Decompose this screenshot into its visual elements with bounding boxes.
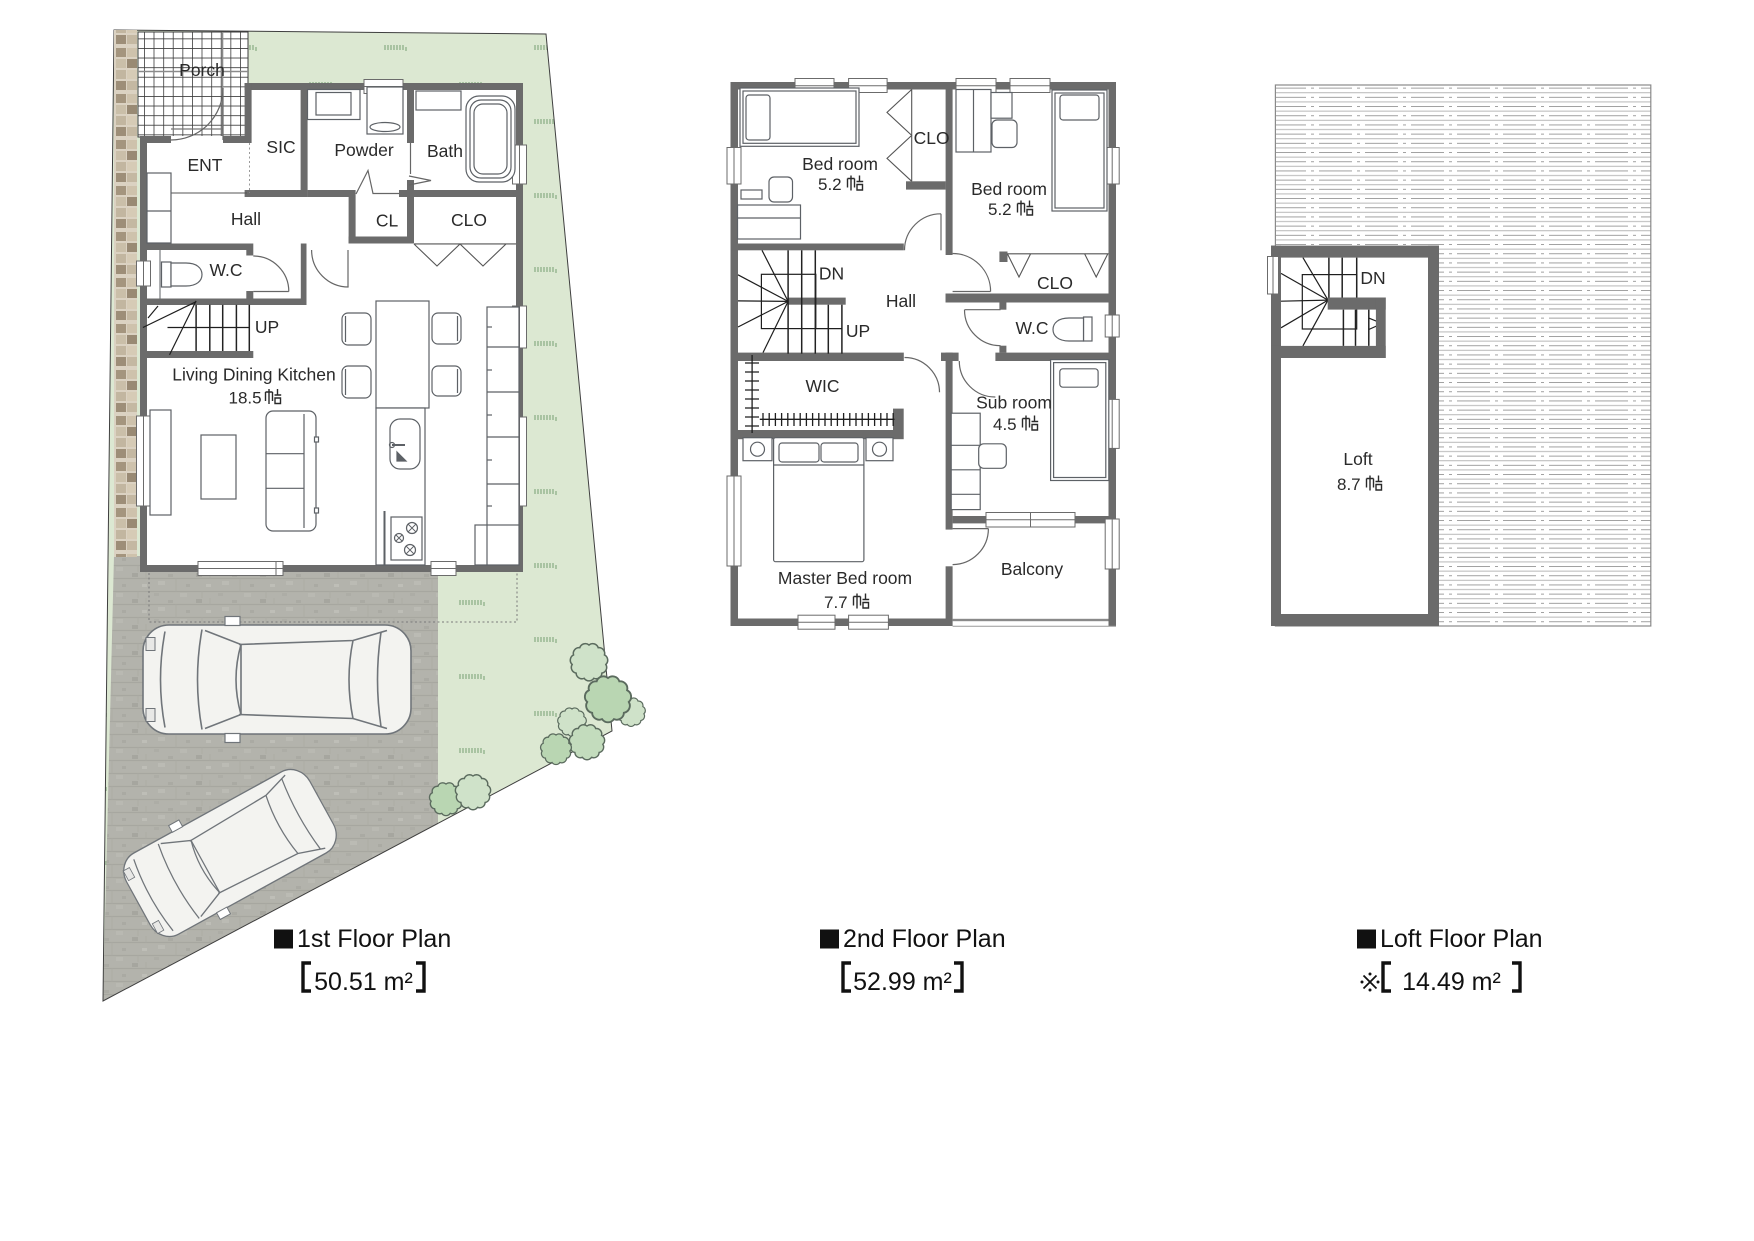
svg-text:8.7: 8.7 <box>1337 475 1361 494</box>
svg-text:52.99 m²: 52.99 m² <box>853 968 952 996</box>
svg-text:5.2: 5.2 <box>988 200 1012 219</box>
svg-text:Bed room: Bed room <box>802 154 878 174</box>
svg-text:Bed room: Bed room <box>971 179 1047 199</box>
svg-text:5.2: 5.2 <box>818 175 842 194</box>
svg-text:W.C: W.C <box>1015 318 1048 338</box>
svg-text:14.49 m²: 14.49 m² <box>1402 968 1501 996</box>
svg-text:Porch: Porch <box>179 60 225 80</box>
svg-text:Hall: Hall <box>886 291 916 311</box>
svg-text:W.C: W.C <box>209 260 242 280</box>
svg-text:SIC: SIC <box>266 137 295 157</box>
svg-text:DN: DN <box>1360 268 1385 288</box>
svg-text:4.5: 4.5 <box>993 415 1017 434</box>
svg-text:2nd Floor Plan: 2nd Floor Plan <box>843 925 1006 953</box>
svg-text:Master Bed room: Master Bed room <box>778 568 912 588</box>
svg-text:CLO: CLO <box>1037 273 1073 293</box>
svg-text:CL: CL <box>376 211 399 231</box>
svg-text:ENT: ENT <box>188 155 223 175</box>
svg-text:Loft: Loft <box>1343 449 1372 469</box>
svg-text:Hall: Hall <box>231 209 261 229</box>
svg-text:Sub room: Sub room <box>976 393 1052 413</box>
svg-text:UP: UP <box>846 321 870 341</box>
svg-text:50.51 m²: 50.51 m² <box>314 968 413 996</box>
svg-text:UP: UP <box>255 317 279 337</box>
svg-text:Balcony: Balcony <box>1001 559 1064 579</box>
svg-text:DN: DN <box>819 264 844 284</box>
svg-text:CLO: CLO <box>914 128 950 148</box>
svg-text:CLO: CLO <box>451 210 487 230</box>
svg-text:WIC: WIC <box>805 376 839 396</box>
svg-text:18.5: 18.5 <box>229 389 262 408</box>
svg-text:7.7: 7.7 <box>824 593 848 612</box>
svg-text:Living Dining Kitchen: Living Dining Kitchen <box>172 365 335 385</box>
svg-text:Powder: Powder <box>334 140 394 160</box>
svg-text:1st Floor Plan: 1st Floor Plan <box>297 925 451 953</box>
svg-text:Bath: Bath <box>427 141 463 161</box>
svg-text:Loft Floor Plan: Loft Floor Plan <box>1380 925 1543 953</box>
